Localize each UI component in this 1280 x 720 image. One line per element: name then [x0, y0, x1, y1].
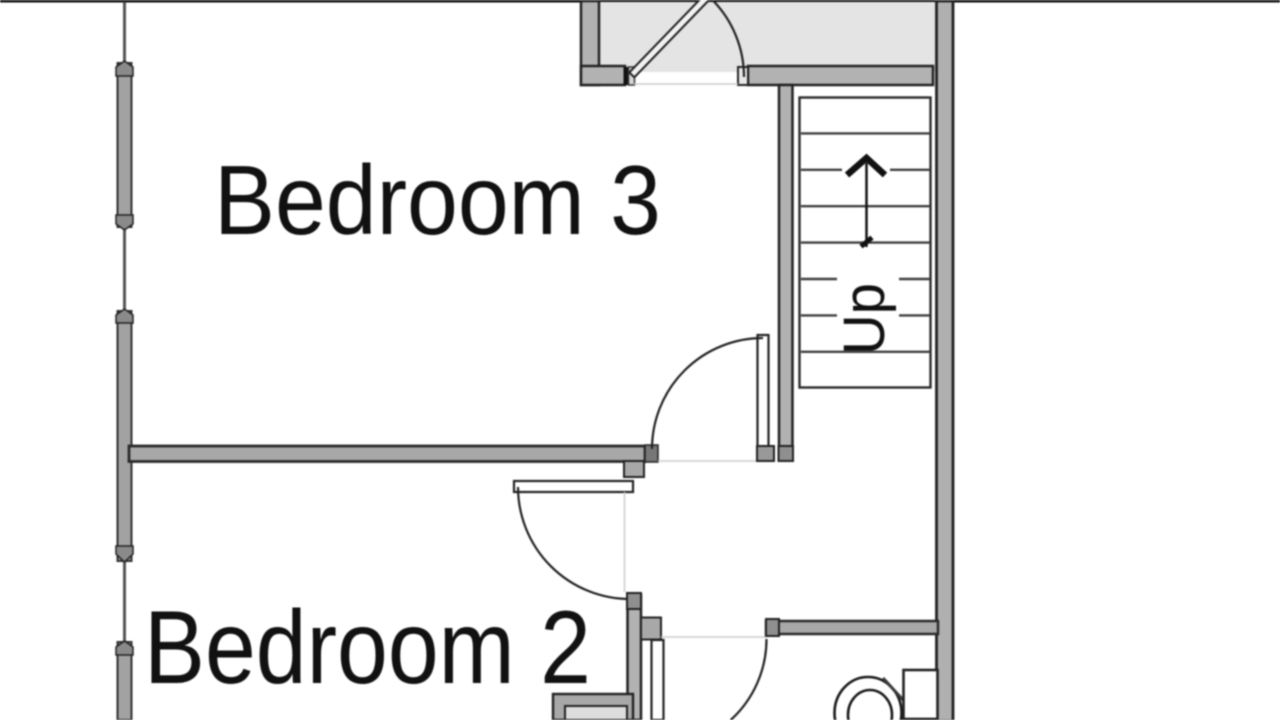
svg-text:Bedroom 3: Bedroom 3	[214, 145, 661, 255]
svg-text:Bedroom 2: Bedroom 2	[144, 590, 591, 706]
svg-text:Up: Up	[832, 283, 897, 355]
